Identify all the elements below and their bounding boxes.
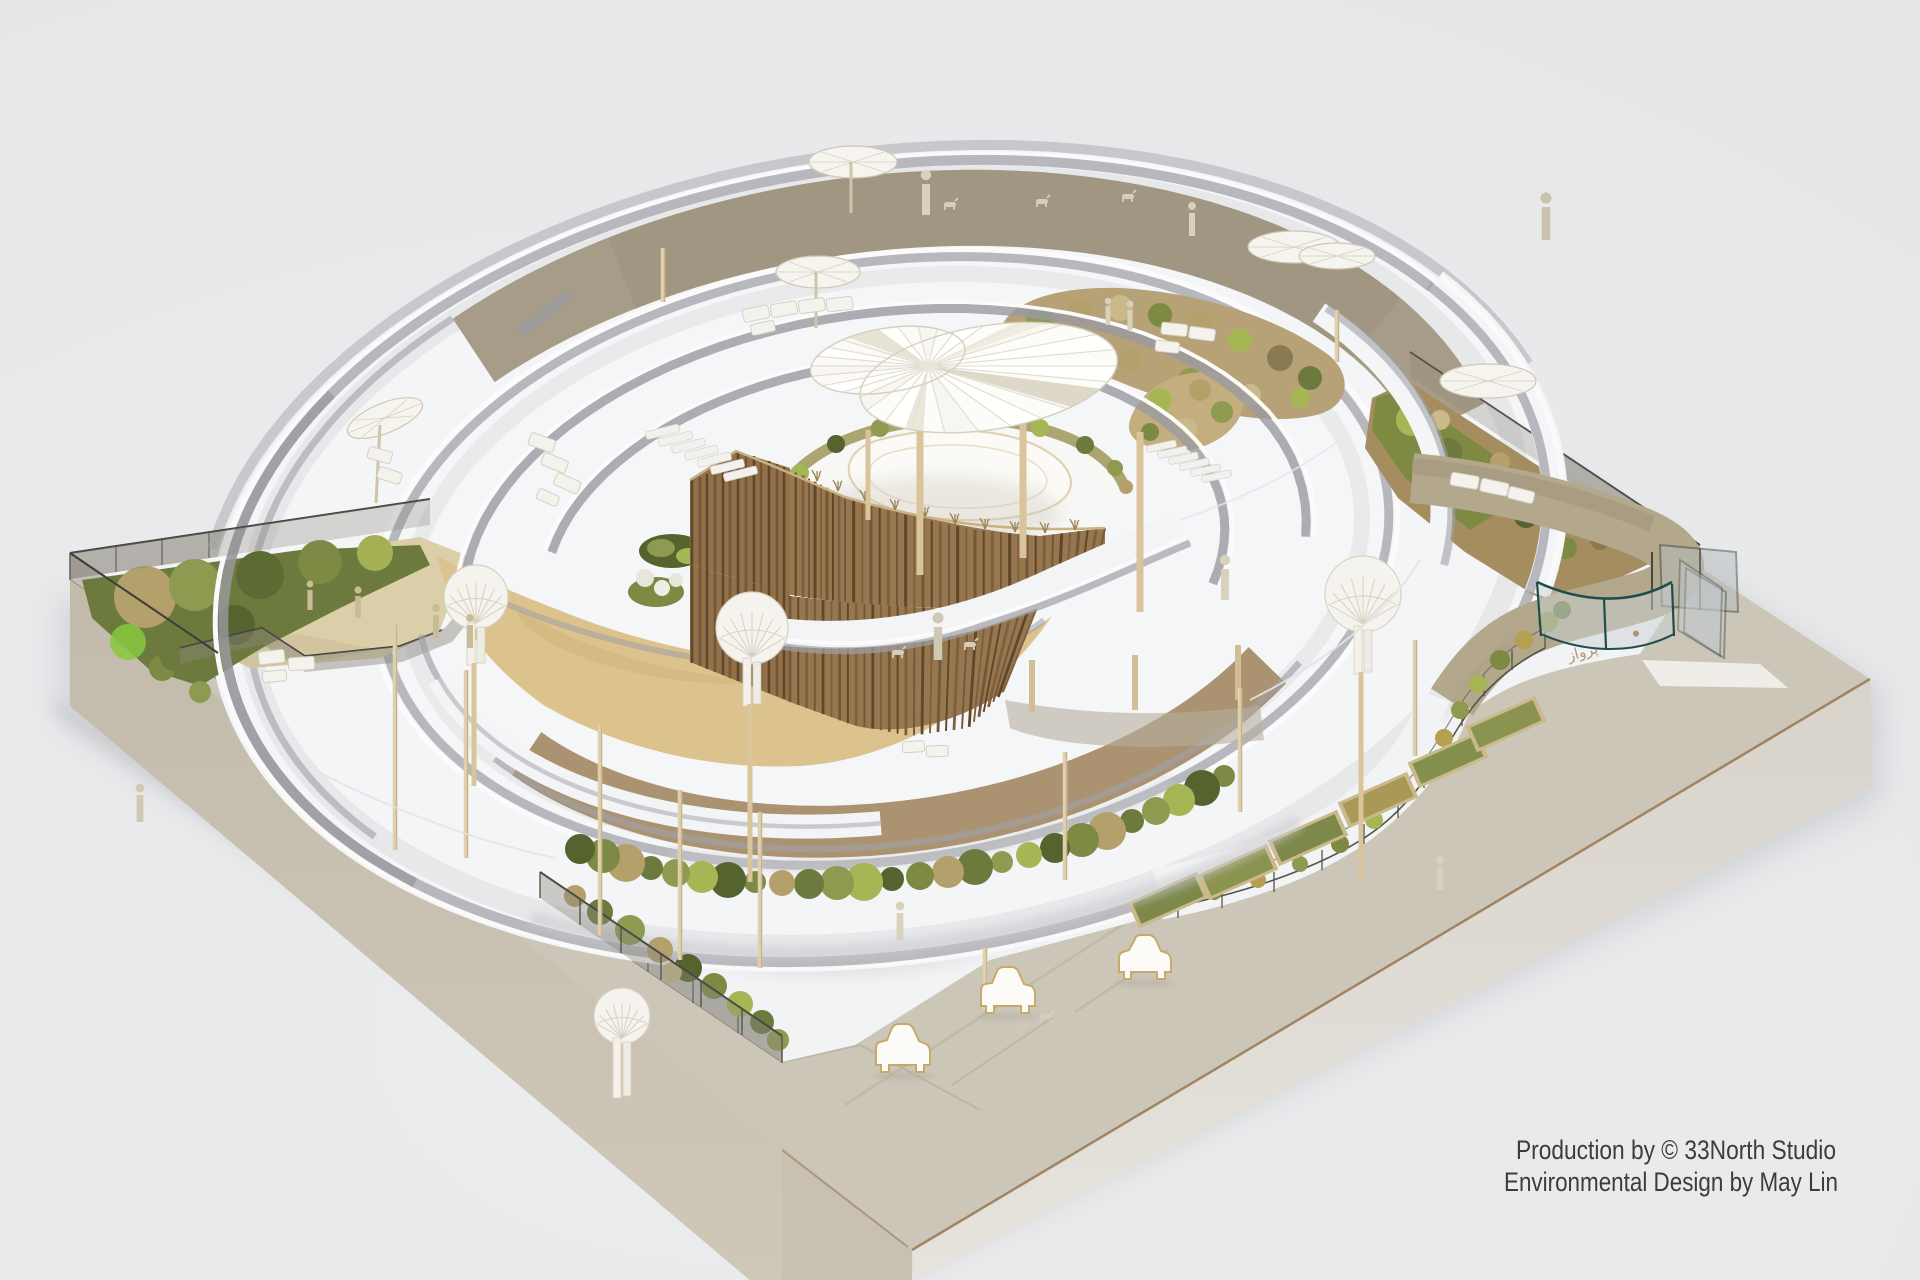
svg-text:Production by © 33North Studio: Production by © 33North Studio (1516, 1135, 1836, 1165)
svg-text:Environmental Design by May Li: Environmental Design by May Lin (1504, 1167, 1838, 1197)
